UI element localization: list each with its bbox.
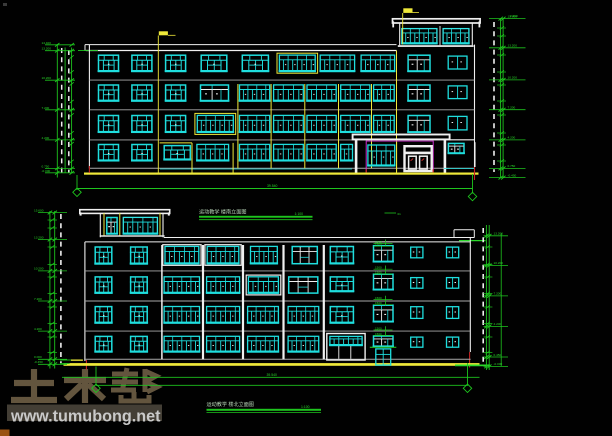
svg-text:7.200: 7.200 <box>42 106 50 110</box>
svg-text:0.450: 0.450 <box>494 353 502 357</box>
svg-text:-0.450: -0.450 <box>34 360 43 364</box>
svg-text:4.200: 4.200 <box>508 136 516 140</box>
svg-text:13.200: 13.200 <box>42 47 52 51</box>
svg-text:7.200: 7.200 <box>508 106 516 110</box>
svg-text:7.200: 7.200 <box>494 292 502 296</box>
svg-text:1500: 1500 <box>375 266 382 270</box>
svg-text:13.200: 13.200 <box>508 44 518 48</box>
svg-text:2.400: 2.400 <box>510 14 518 18</box>
svg-text:-0.000: -0.000 <box>494 362 503 366</box>
svg-text:1500: 1500 <box>375 296 382 300</box>
svg-text:1:100: 1:100 <box>295 212 304 216</box>
svg-text:13.200: 13.200 <box>494 232 504 236</box>
svg-text:-0.450: -0.450 <box>508 173 517 177</box>
svg-text:0.000: 0.000 <box>34 355 42 359</box>
svg-text:4.200: 4.200 <box>34 327 42 331</box>
svg-text:39.540: 39.540 <box>267 373 277 377</box>
svg-text:4.200: 4.200 <box>42 136 50 140</box>
svg-text:运动教学 楼北立面图: 运动教学 楼北立面图 <box>207 400 255 408</box>
svg-text:0.750: 0.750 <box>508 164 516 168</box>
svg-text:15.600: 15.600 <box>34 208 44 212</box>
svg-text:运动教学 楼南立面图: 运动教学 楼南立面图 <box>199 207 247 215</box>
svg-text:1500: 1500 <box>375 301 382 305</box>
svg-text:14.400: 14.400 <box>42 41 52 45</box>
svg-text:10.200: 10.200 <box>42 76 52 80</box>
svg-text:1:100: 1:100 <box>301 405 310 409</box>
svg-text:7.200: 7.200 <box>34 297 42 301</box>
svg-text:1500: 1500 <box>375 326 382 330</box>
svg-text:10.200: 10.200 <box>494 261 504 265</box>
svg-text:0.750: 0.750 <box>42 164 50 168</box>
svg-text:-0.000: -0.000 <box>42 169 51 173</box>
svg-text:01: 01 <box>398 212 402 216</box>
svg-text:10.200: 10.200 <box>34 267 44 271</box>
svg-text:1500: 1500 <box>375 243 382 247</box>
svg-text:10.200: 10.200 <box>508 76 518 80</box>
svg-text:39.540: 39.540 <box>267 184 277 188</box>
svg-text:4.200: 4.200 <box>494 322 502 326</box>
svg-text:1500: 1500 <box>375 332 382 336</box>
svg-text:www.tumubong.net: www.tumubong.net <box>10 407 161 425</box>
svg-text:1500: 1500 <box>375 270 382 274</box>
svg-text:13.200: 13.200 <box>34 235 44 239</box>
